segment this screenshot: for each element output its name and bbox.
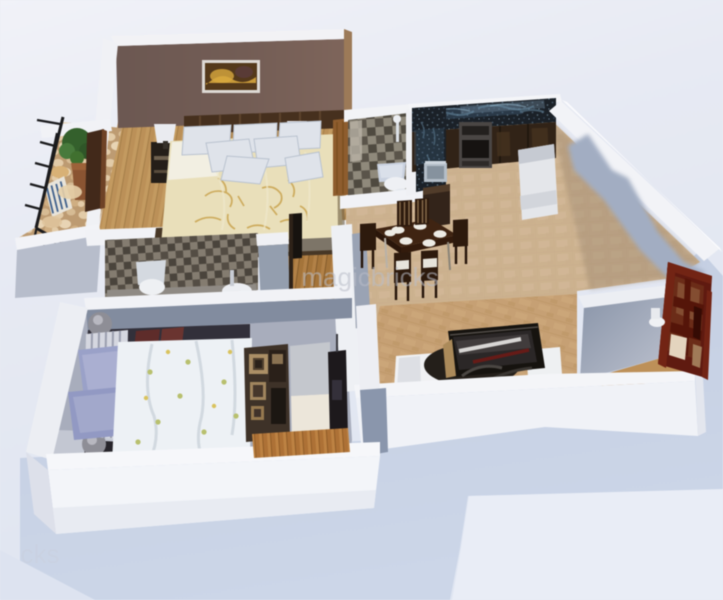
- svg-text:cks: cks: [21, 539, 60, 569]
- svg-text:magicbricks: magicbricks: [301, 262, 438, 292]
